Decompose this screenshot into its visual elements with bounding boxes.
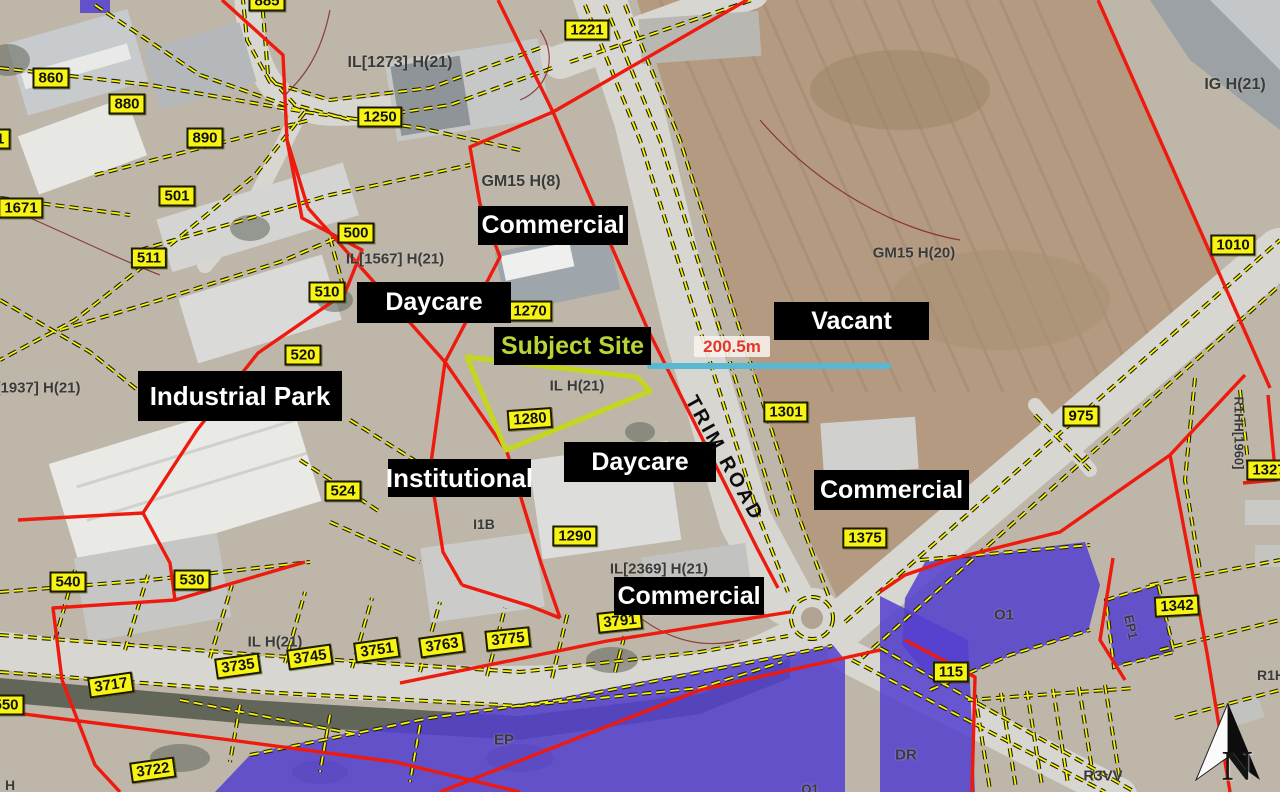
map-basemap — [0, 0, 1280, 792]
zoning-aerial-map: IL[1273] H(21)GM15 H(8)IG H(21)GM15 H(20… — [0, 0, 1280, 792]
north-label: N — [1222, 746, 1252, 788]
measurement-label: 200.5m — [694, 336, 770, 357]
